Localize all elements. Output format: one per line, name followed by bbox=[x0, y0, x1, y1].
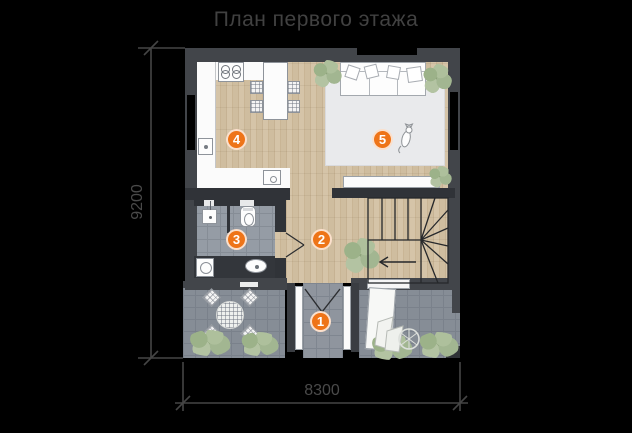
bathroom-right-wall-upper bbox=[275, 200, 286, 232]
living-stairs-wall bbox=[332, 188, 455, 198]
top-wall-recess bbox=[357, 48, 417, 55]
media-console bbox=[343, 176, 440, 188]
left-terrace-wall-a bbox=[183, 281, 240, 288]
bar-chair bbox=[287, 100, 300, 113]
plant bbox=[312, 60, 342, 88]
entrance-sidelight-left bbox=[295, 286, 303, 350]
bar-chair bbox=[250, 81, 263, 94]
plant bbox=[422, 64, 452, 94]
left-terrace-wall-b bbox=[258, 281, 285, 288]
bathroom-partition bbox=[227, 205, 230, 233]
right-window bbox=[450, 92, 458, 150]
bathroom-shelf-item bbox=[204, 200, 214, 206]
plant bbox=[368, 334, 414, 360]
terrace-table bbox=[216, 301, 244, 329]
room-marker-5: 5 bbox=[372, 129, 393, 150]
room-marker-3: 3 bbox=[226, 229, 247, 250]
stove bbox=[218, 62, 244, 82]
room-marker-1: 1 bbox=[310, 311, 331, 332]
plant bbox=[238, 332, 280, 356]
kitchen-bathroom-wall bbox=[185, 188, 290, 200]
shower-head bbox=[202, 209, 217, 224]
left-terrace-window bbox=[240, 282, 258, 287]
entrance-sidelight-right bbox=[343, 286, 351, 350]
bathroom-sink bbox=[245, 259, 267, 273]
left-window bbox=[187, 95, 195, 150]
plant bbox=[186, 330, 232, 356]
kitchen-island bbox=[263, 62, 288, 120]
dimension-height-label: 9200 bbox=[129, 180, 147, 224]
sofa bbox=[340, 62, 426, 96]
page-title: План первого этажа bbox=[0, 8, 632, 32]
right-terrace-wall bbox=[452, 283, 460, 313]
dimension-width-label: 8300 bbox=[282, 382, 362, 400]
bar-chair bbox=[250, 100, 263, 113]
entrance-column-right bbox=[351, 283, 359, 352]
bar-chair bbox=[287, 81, 300, 94]
kitchen-sink-2 bbox=[263, 170, 281, 185]
kitchen-sink bbox=[198, 138, 213, 155]
toilet bbox=[240, 206, 256, 227]
plant bbox=[342, 238, 380, 274]
stairs-floor bbox=[368, 198, 448, 283]
entrance-column-left bbox=[287, 283, 295, 352]
left-wall bbox=[185, 48, 197, 290]
plant bbox=[428, 166, 452, 188]
washing-machine bbox=[196, 258, 214, 277]
room-marker-4: 4 bbox=[226, 129, 247, 150]
room-marker-2: 2 bbox=[311, 229, 332, 250]
plant bbox=[416, 332, 460, 358]
